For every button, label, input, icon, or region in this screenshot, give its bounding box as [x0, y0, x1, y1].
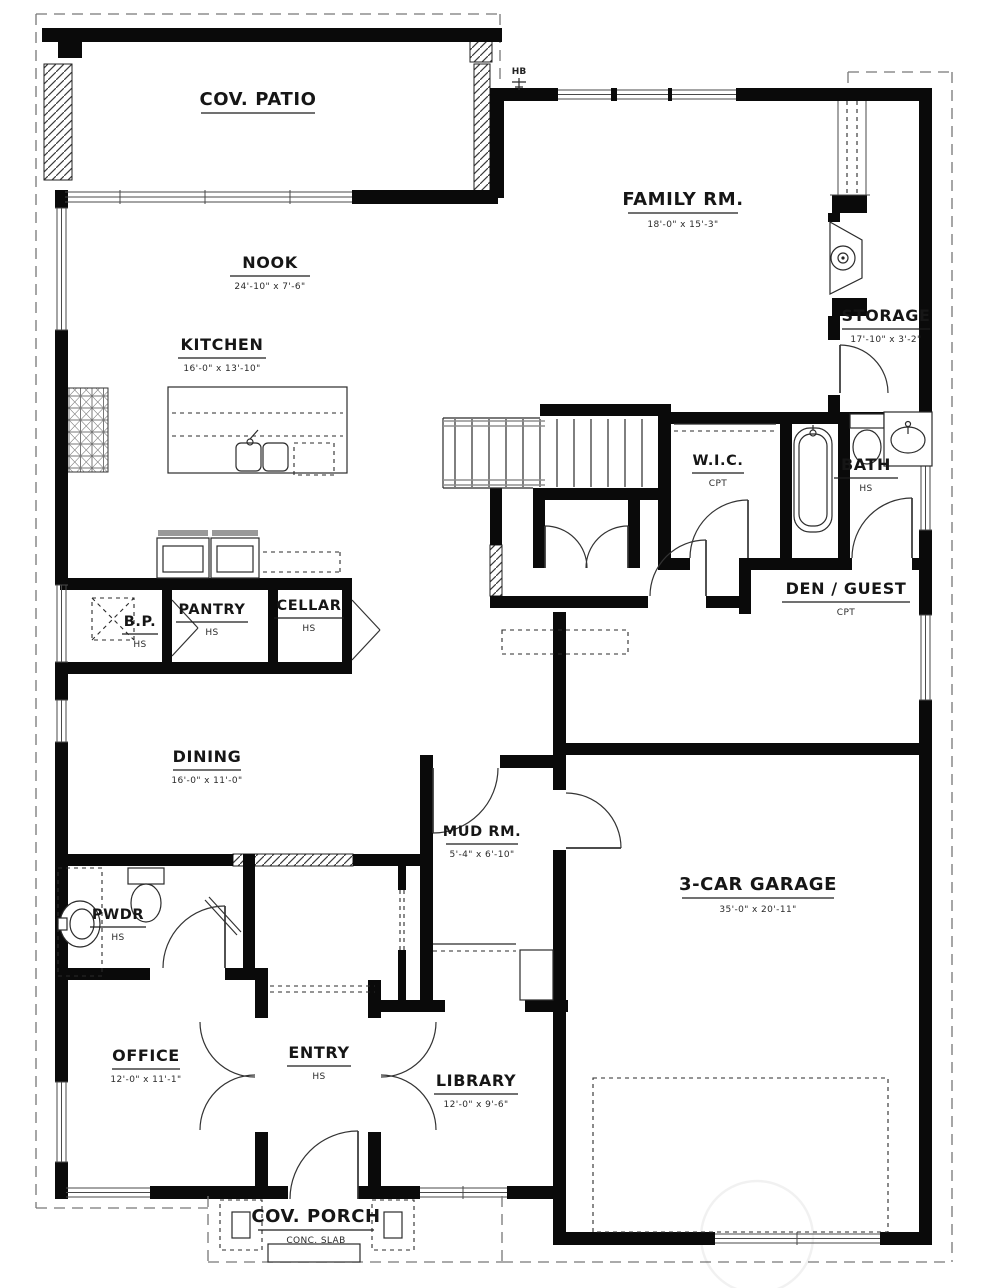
room-label-office: OFFICE 12'-0" x 11'-1" — [110, 1046, 181, 1085]
svg-text:HS: HS — [302, 624, 315, 634]
svg-text:NOOK: NOOK — [242, 253, 297, 272]
kitchen-sink-basin — [236, 443, 261, 471]
patio-post-left — [44, 64, 72, 180]
svg-text:BATH: BATH — [841, 455, 891, 474]
library-french-doors — [381, 1022, 436, 1130]
wic-door-swing — [690, 500, 748, 558]
svg-text:HS: HS — [111, 933, 124, 943]
svg-text:12'-0" x 11'-1": 12'-0" x 11'-1" — [110, 1075, 181, 1085]
svg-text:HS: HS — [205, 628, 218, 638]
porch-step — [268, 1244, 360, 1262]
svg-text:35'-0" x 20'-11": 35'-0" x 20'-11" — [719, 905, 796, 915]
room-label-cellar: CELLAR HS — [274, 598, 344, 634]
kitchen-island — [168, 387, 347, 475]
mudroom-bench — [520, 950, 553, 1000]
room-label-storage: STORAGE 17'-10" x 3'-2" — [841, 306, 930, 345]
room-label-kitchen: KITCHEN 16'-0" x 13'-10" — [178, 335, 266, 374]
front-door-swing — [290, 1131, 358, 1199]
svg-text:MUD RM.: MUD RM. — [443, 824, 522, 840]
kitchen-appliances — [157, 530, 340, 578]
svg-text:16'-0" x 11'-0": 16'-0" x 11'-0" — [171, 776, 242, 786]
room-label-nook: NOOK 24'-10" x 7'-6" — [230, 253, 310, 292]
hall-closet-doors — [545, 526, 628, 568]
svg-text:DINING: DINING — [173, 747, 242, 766]
powder-door-swing — [163, 906, 225, 968]
hose-bib-label: HB — [512, 67, 527, 77]
floor-plan-canvas: COV. PATIO NOOK 24'-10" x 7'-6" KITCHEN … — [0, 0, 1008, 1288]
svg-text:PANTRY: PANTRY — [178, 602, 245, 618]
svg-text:24'-10" x 7'-6": 24'-10" x 7'-6" — [234, 282, 305, 292]
toilet-tank — [850, 414, 884, 428]
room-label-dining: DINING 16'-0" x 11'-0" — [171, 747, 242, 786]
kitchen-sink-basin — [263, 443, 288, 471]
room-label-library: LIBRARY 12'-0" x 9'-6" — [434, 1071, 518, 1110]
svg-text:17'-10" x 3'-2": 17'-10" x 3'-2" — [850, 335, 921, 345]
svg-text:HS: HS — [133, 640, 146, 650]
garage-entry-door-swing — [566, 793, 621, 848]
svg-text:5'-4" x 6'-10": 5'-4" x 6'-10" — [449, 850, 514, 860]
svg-text:W.I.C.: W.I.C. — [693, 453, 744, 469]
toilet-tank — [128, 868, 164, 884]
svg-text:STORAGE: STORAGE — [841, 306, 930, 325]
svg-text:HS: HS — [859, 484, 872, 494]
room-label-pantry: PANTRY HS — [176, 602, 248, 638]
room-labels: COV. PATIO NOOK 24'-10" x 7'-6" KITCHEN … — [90, 67, 931, 1246]
room-label-wic: W.I.C. CPT — [692, 453, 744, 489]
svg-text:CPT: CPT — [709, 479, 728, 489]
svg-text:B.P.: B.P. — [124, 614, 156, 630]
garage-slab-dashed — [593, 1078, 888, 1232]
svg-text:CPT: CPT — [837, 608, 856, 618]
svg-text:PWDR: PWDR — [92, 907, 144, 923]
svg-text:FAMILY RM.: FAMILY RM. — [622, 189, 743, 210]
bath-door-swing — [852, 498, 912, 558]
staircase — [443, 418, 642, 488]
svg-text:18'-0" x 15'-3": 18'-0" x 15'-3" — [647, 220, 718, 230]
room-label-entry: ENTRY HS — [287, 1043, 351, 1082]
svg-text:LIBRARY: LIBRARY — [436, 1071, 516, 1090]
svg-text:16'-0" x 13'-10": 16'-0" x 13'-10" — [183, 364, 260, 374]
media-niche — [830, 222, 862, 294]
svg-text:12'-0" x 9'-6": 12'-0" x 9'-6" — [443, 1100, 508, 1110]
patio-east-wall-hatch — [474, 64, 490, 194]
svg-text:3-CAR GARAGE: 3-CAR GARAGE — [679, 874, 837, 895]
room-label-den-guest: DEN / GUEST CPT — [782, 579, 910, 618]
hall-opening-header — [490, 545, 502, 596]
svg-text:OFFICE: OFFICE — [112, 1046, 180, 1065]
room-label-cov-patio: COV. PATIO — [199, 89, 316, 113]
room-label-mud-rm: MUD RM. 5'-4" x 6'-10" — [443, 824, 522, 860]
room-label-bp: B.P. HS — [122, 614, 158, 650]
cellar-angled-door — [352, 600, 380, 660]
svg-text:COV. PORCH: COV. PORCH — [251, 1206, 380, 1227]
patio-post-right — [470, 40, 492, 62]
svg-text:ENTRY: ENTRY — [288, 1043, 349, 1062]
svg-text:HS: HS — [312, 1072, 325, 1082]
kitchen-cabinet-block — [62, 388, 108, 472]
closet-angled-door — [205, 897, 241, 935]
svg-text:KITCHEN: KITCHEN — [181, 335, 264, 354]
room-label-cov-porch: COV. PORCH CONC. SLAB — [251, 1206, 380, 1246]
svg-text:CELLAR: CELLAR — [276, 598, 341, 614]
storage-door-swing — [840, 345, 888, 393]
svg-text:CONC. SLAB: CONC. SLAB — [286, 1236, 345, 1246]
room-label-family-rm: FAMILY RM. 18'-0" x 15'-3" — [622, 189, 743, 230]
room-label-garage: 3-CAR GARAGE 35'-0" x 20'-11" — [679, 874, 837, 915]
floor-plan-sheet: COV. PATIO NOOK 24'-10" x 7'-6" KITCHEN … — [0, 0, 1008, 1288]
powder-faucet — [58, 918, 67, 930]
office-french-doors — [200, 1022, 255, 1130]
svg-text:DEN / GUEST: DEN / GUEST — [786, 579, 907, 598]
svg-text:COV. PATIO: COV. PATIO — [199, 89, 316, 110]
